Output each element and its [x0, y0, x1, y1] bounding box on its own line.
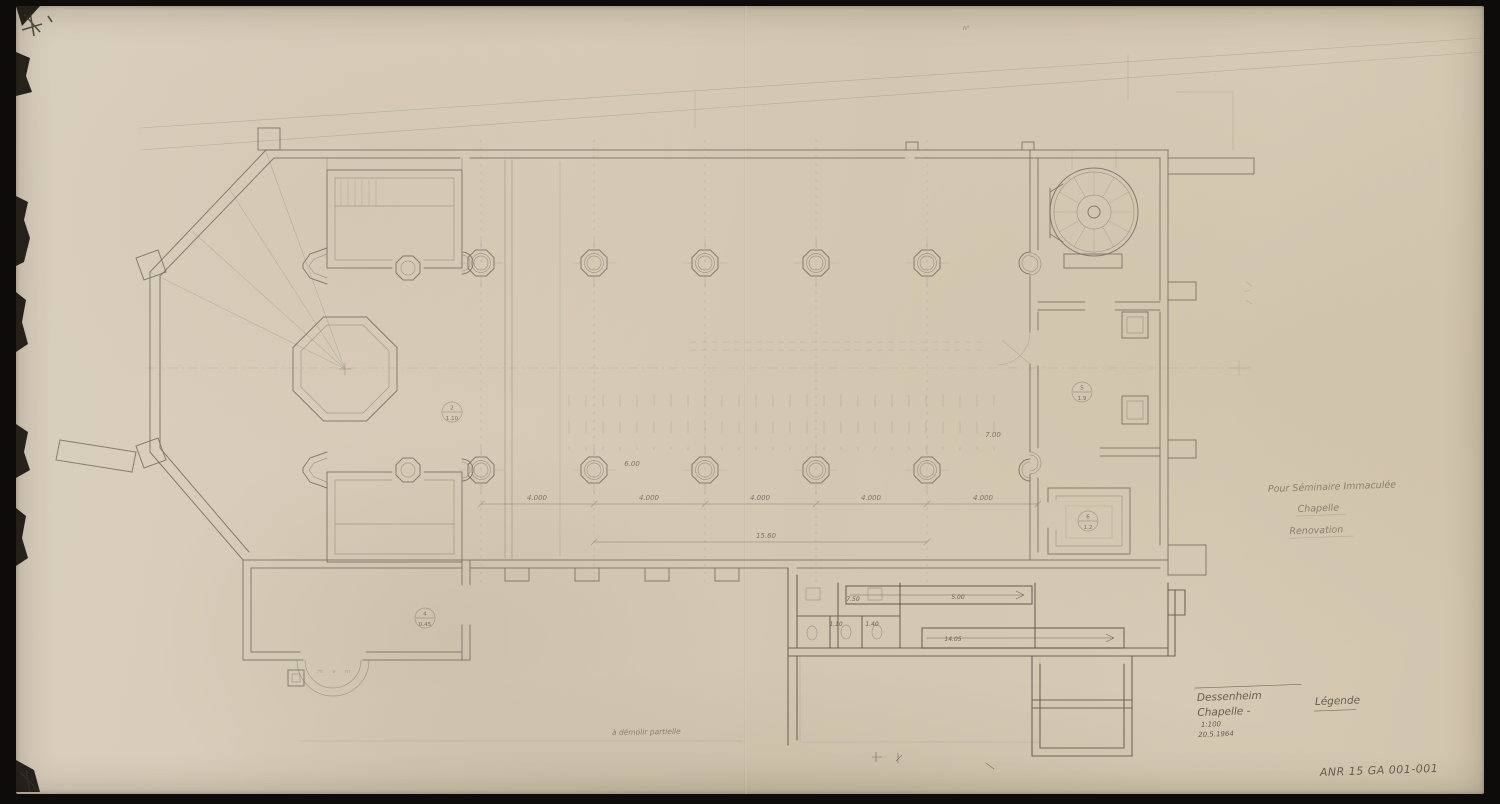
side-note-line1: Pour Séminaire Immaculée: [1268, 480, 1397, 495]
dim-annex-stair: 5.00: [951, 594, 965, 601]
dim-annex-d2: 1.40: [865, 621, 879, 628]
marker-bottom: 1.9: [1078, 396, 1087, 402]
title-scale: 1:100: [1201, 720, 1222, 729]
north-sacristy: [303, 158, 462, 284]
dim-total: 15.60: [756, 532, 777, 540]
dim-aisle: 6.00: [624, 460, 640, 468]
marker-bottom: 0.45: [419, 622, 432, 628]
side-note-line2: Chapelle: [1297, 503, 1339, 515]
legend-label: Légende: [1315, 694, 1361, 708]
sheet-reference-number: ANR 15 GA 001-001: [1319, 762, 1439, 779]
dim-annex-width: 7.50: [846, 596, 860, 603]
dim-annex-d1: 1.10: [829, 621, 843, 628]
marker-bottom: 1.2: [1084, 525, 1093, 531]
south-sacristy: [303, 452, 462, 562]
floor-plan-drawing: 4.000 4.000 4.000 4.000 4.000 15.60 6.00…: [0, 0, 1500, 804]
dim-bay-5: 4.000: [973, 494, 994, 502]
dim-bay-1: 4.000: [527, 494, 548, 502]
marker-bottom: 1.10: [446, 416, 459, 422]
level-marker-3: 5 1.9: [1072, 382, 1092, 402]
level-marker-1: 2 1.10: [442, 402, 462, 422]
spiral-stair-turret: [1050, 150, 1138, 268]
west-porch: [243, 560, 742, 741]
marker-top: 6: [1086, 515, 1090, 521]
dim-east-bay: 7.00: [985, 431, 1001, 439]
east-chancel: [997, 92, 1254, 575]
title-place: Dessenheim: [1197, 690, 1262, 704]
nave-columns: [459, 239, 1030, 494]
scanned-drawing-sheet: 4.000 4.000 4.000 4.000 4.000 15.60 6.00…: [0, 0, 1500, 804]
title-building: Chapelle -: [1197, 705, 1251, 719]
nave-walls: [266, 142, 1168, 581]
demolition-note: à démolir partielle: [612, 727, 681, 737]
title-block: Dessenheim Chapelle - 1:100 20.5.1964: [1195, 684, 1304, 739]
title-date: 20.5.1964: [1198, 730, 1234, 739]
level-marker-2: 4 0.45: [415, 608, 435, 628]
side-note-line3: Renovation: [1289, 524, 1343, 537]
dim-bay-2: 4.000: [639, 494, 660, 502]
marker-top: 5: [1080, 386, 1084, 392]
marker-top: 4: [423, 612, 427, 618]
dim-annex-length: 14.05: [944, 636, 961, 643]
porch-letters: m e m: [318, 669, 354, 675]
scan-edge-artifacts: [16, 6, 52, 792]
marker-top: 2: [450, 406, 454, 412]
dimension-texts: 4.000 4.000 4.000 4.000 4.000 15.60 6.00…: [527, 431, 1001, 643]
construction-lines: [140, 38, 1482, 585]
dim-bay-4: 4.000: [861, 494, 882, 502]
west-apse-walls: [56, 128, 397, 560]
dim-bay-3: 4.000: [750, 494, 771, 502]
level-marker-4: 6 1.2: [1078, 511, 1098, 531]
corner-note: n°: [963, 25, 970, 32]
